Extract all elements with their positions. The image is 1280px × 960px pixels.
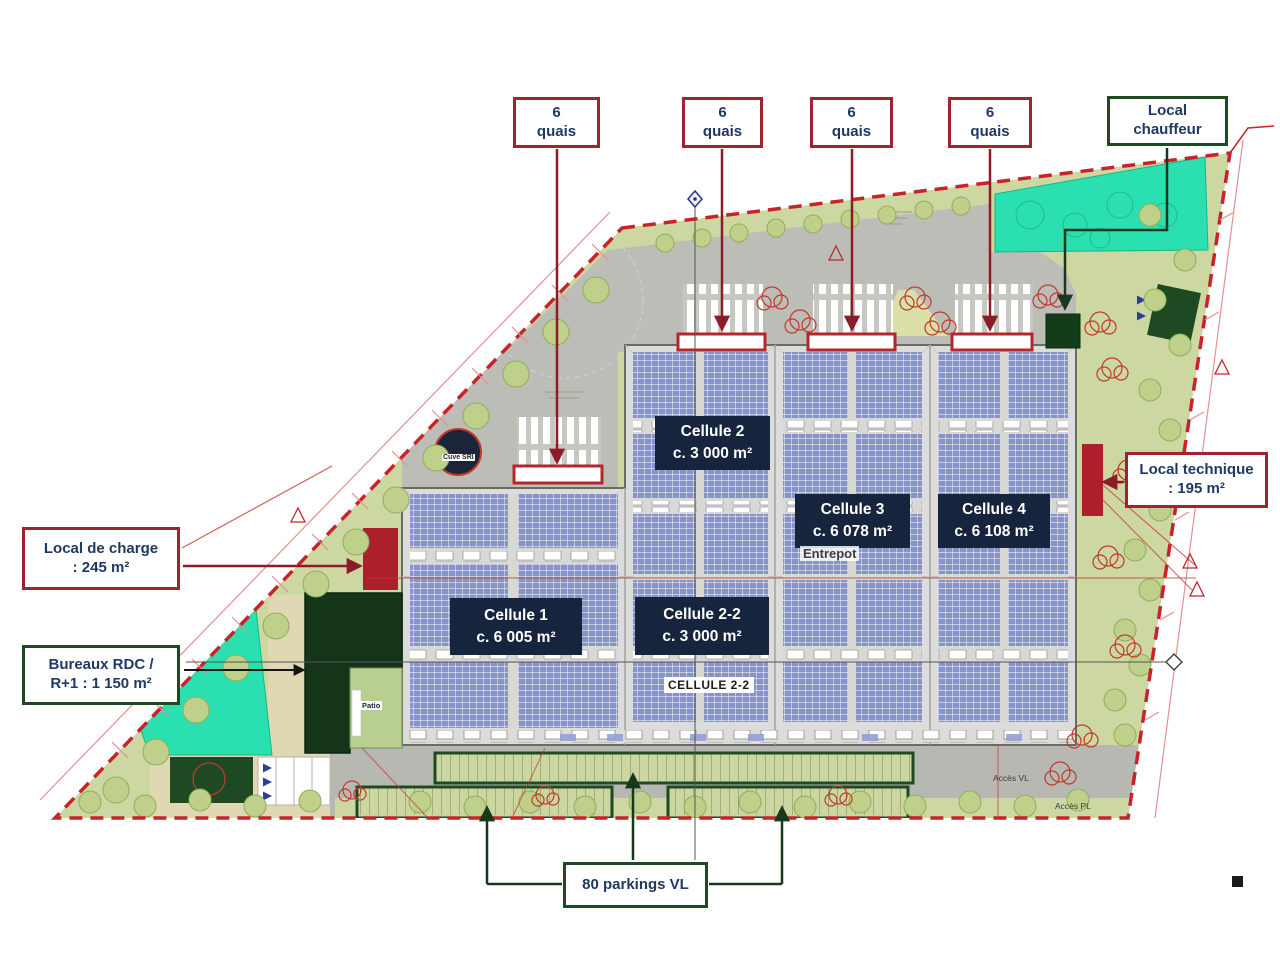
label-line: chauffeur: [1133, 121, 1201, 140]
cell-name: Cellule 2: [681, 421, 745, 443]
site-plan-page: 6 quais 6 quais 6 quais 6 quais Local ch…: [0, 0, 1280, 960]
entrepot-text: Entrepot: [800, 546, 859, 561]
label-line: : 245 m²: [73, 559, 130, 578]
label-line: Local technique: [1139, 461, 1253, 480]
quai-count: 6: [986, 104, 994, 123]
label-line: Local: [1148, 102, 1187, 121]
quai-unit: quais: [537, 123, 576, 142]
label-local-technique: Local technique : 195 m²: [1125, 452, 1268, 508]
cell-label-cellule-4: Cellule 4 c. 6 108 m²: [938, 494, 1050, 548]
cell-label-cellule-3: Cellule 3 c. 6 078 m²: [795, 494, 910, 548]
label-6-quais-3: 6 quais: [810, 97, 893, 148]
label-line: : 195 m²: [1168, 480, 1225, 499]
cell-label-cellule-1: Cellule 1 c. 6 005 m²: [450, 598, 582, 655]
quai-count: 6: [718, 104, 726, 123]
label-6-quais-1: 6 quais: [513, 97, 600, 148]
cellule-2-2-floor-text: CELLULE 2-2: [664, 677, 754, 693]
quai-count: 6: [552, 104, 560, 123]
quai-unit: quais: [970, 123, 1009, 142]
cell-name: Cellule 1: [484, 605, 548, 627]
label-6-quais-4: 6 quais: [948, 97, 1032, 148]
label-local-de-charge: Local de charge : 245 m²: [22, 527, 180, 590]
cell-label-cellule-2: Cellule 2 c. 3 000 m²: [655, 416, 770, 470]
patio-text: Patio: [360, 701, 382, 710]
cell-name: Cellule 4: [962, 499, 1026, 521]
cuve-sri-text: Cuve SRI: [442, 454, 475, 461]
quai-count: 6: [847, 104, 855, 123]
cell-area: c. 6 005 m²: [476, 627, 555, 649]
label-6-quais-2: 6 quais: [682, 97, 763, 148]
cell-area: c. 6 078 m²: [813, 521, 892, 543]
stair-strip: [352, 690, 361, 736]
corner-mark: [1232, 876, 1243, 887]
local-technique-building: [1082, 444, 1103, 516]
cell-area: c. 3 000 m²: [662, 626, 741, 648]
label-local-chauffeur: Local chauffeur: [1107, 96, 1228, 146]
cell-area: c. 6 108 m²: [954, 521, 1033, 543]
acces-vl-text: Accès VL: [993, 773, 1029, 783]
label-bureaux: Bureaux RDC / R+1 : 1 150 m²: [22, 645, 180, 705]
acces-pl-text: Accès PL: [1055, 801, 1091, 811]
label-line: 80 parkings VL: [582, 876, 689, 895]
label-80-parkings: 80 parkings VL: [563, 862, 708, 908]
quai-unit: quais: [703, 123, 742, 142]
quai-unit: quais: [832, 123, 871, 142]
local-chauffeur-building: [1046, 314, 1080, 348]
cell-name: Cellule 2-2: [663, 604, 741, 626]
label-line: R+1 : 1 150 m²: [50, 675, 151, 694]
cell-label-cellule-2-2: Cellule 2-2 c. 3 000 m²: [635, 597, 769, 655]
label-line: Bureaux RDC /: [48, 656, 153, 675]
reserve-incendie: [170, 757, 253, 803]
cell-name: Cellule 3: [821, 499, 885, 521]
label-line: Local de charge: [44, 540, 158, 559]
site-interior: [55, 153, 1230, 818]
site-plan-drawing: [0, 0, 1280, 960]
cell-area: c. 3 000 m²: [673, 443, 752, 465]
